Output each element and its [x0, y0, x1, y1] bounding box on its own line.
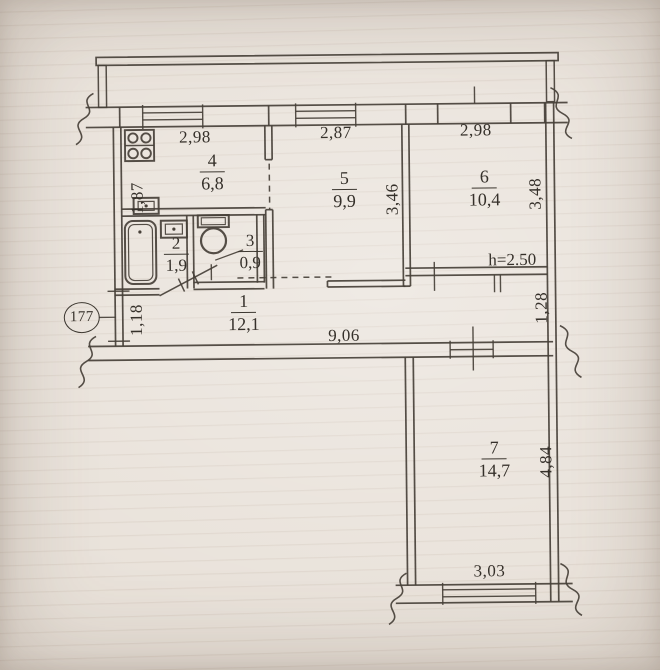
dim-top-left: 2,98	[179, 127, 211, 147]
room-number: 3	[238, 232, 263, 252]
room-number: 7	[482, 438, 507, 459]
room-label-2: 2 1,9	[164, 235, 189, 275]
dim-top-right: 2,98	[460, 120, 492, 140]
toilet-icon	[198, 215, 229, 253]
room-label-3: 3 0,9	[238, 232, 263, 272]
stove-icon	[125, 130, 154, 161]
window-middle-wall	[450, 326, 493, 370]
dim-room7-width: 3,03	[474, 561, 506, 581]
dim-room6-depth: 3,48	[525, 178, 545, 210]
room-label-5: 5 9,9	[332, 169, 357, 211]
dim-hall-width: 9,06	[328, 326, 360, 346]
room-area: 1,9	[164, 256, 189, 274]
dim-kitchen-left: 1,87	[127, 182, 147, 214]
room-label-6: 6 10,4	[469, 167, 501, 209]
middle-wall	[88, 342, 553, 361]
window-kitchen	[143, 104, 203, 129]
right-exterior-wall	[546, 103, 559, 602]
dim-hall-right: 1,28	[532, 292, 552, 324]
room-number: 1	[231, 292, 256, 313]
room-area: 6,8	[200, 174, 225, 193]
room-area: 9,9	[332, 192, 357, 211]
room-number: 2	[164, 235, 189, 255]
dim-hall-left: 1,18	[127, 304, 147, 336]
room-label-7: 7 14,7	[478, 438, 510, 480]
room-area: 14,7	[479, 461, 511, 480]
dim-top-mid: 2,87	[320, 123, 352, 143]
room-label-1: 1 12,1	[228, 292, 260, 334]
top-exterior-wall	[85, 86, 567, 128]
room-label-4: 4 6,8	[200, 151, 225, 193]
ceiling-height-note: h=2.50	[488, 250, 536, 270]
bathtub-icon	[125, 221, 157, 284]
dim-room7-depth: 4,84	[536, 446, 556, 478]
paper: 2,98 2,87 2,98 1,87 3,46 3,48 1,18 1,28 …	[0, 0, 660, 670]
room-number: 5	[332, 169, 357, 190]
room-area: 0,9	[238, 254, 263, 272]
room-number: 6	[472, 167, 497, 188]
room-area: 10,4	[469, 190, 501, 209]
dim-room5-depth: 3,46	[382, 183, 402, 215]
room-number: 4	[200, 151, 225, 172]
floor-plan: 2,98 2,87 2,98 1,87 3,46 3,48 1,18 1,28 …	[0, 0, 660, 670]
balcony-railing	[96, 53, 558, 108]
room-area: 12,1	[228, 315, 260, 334]
